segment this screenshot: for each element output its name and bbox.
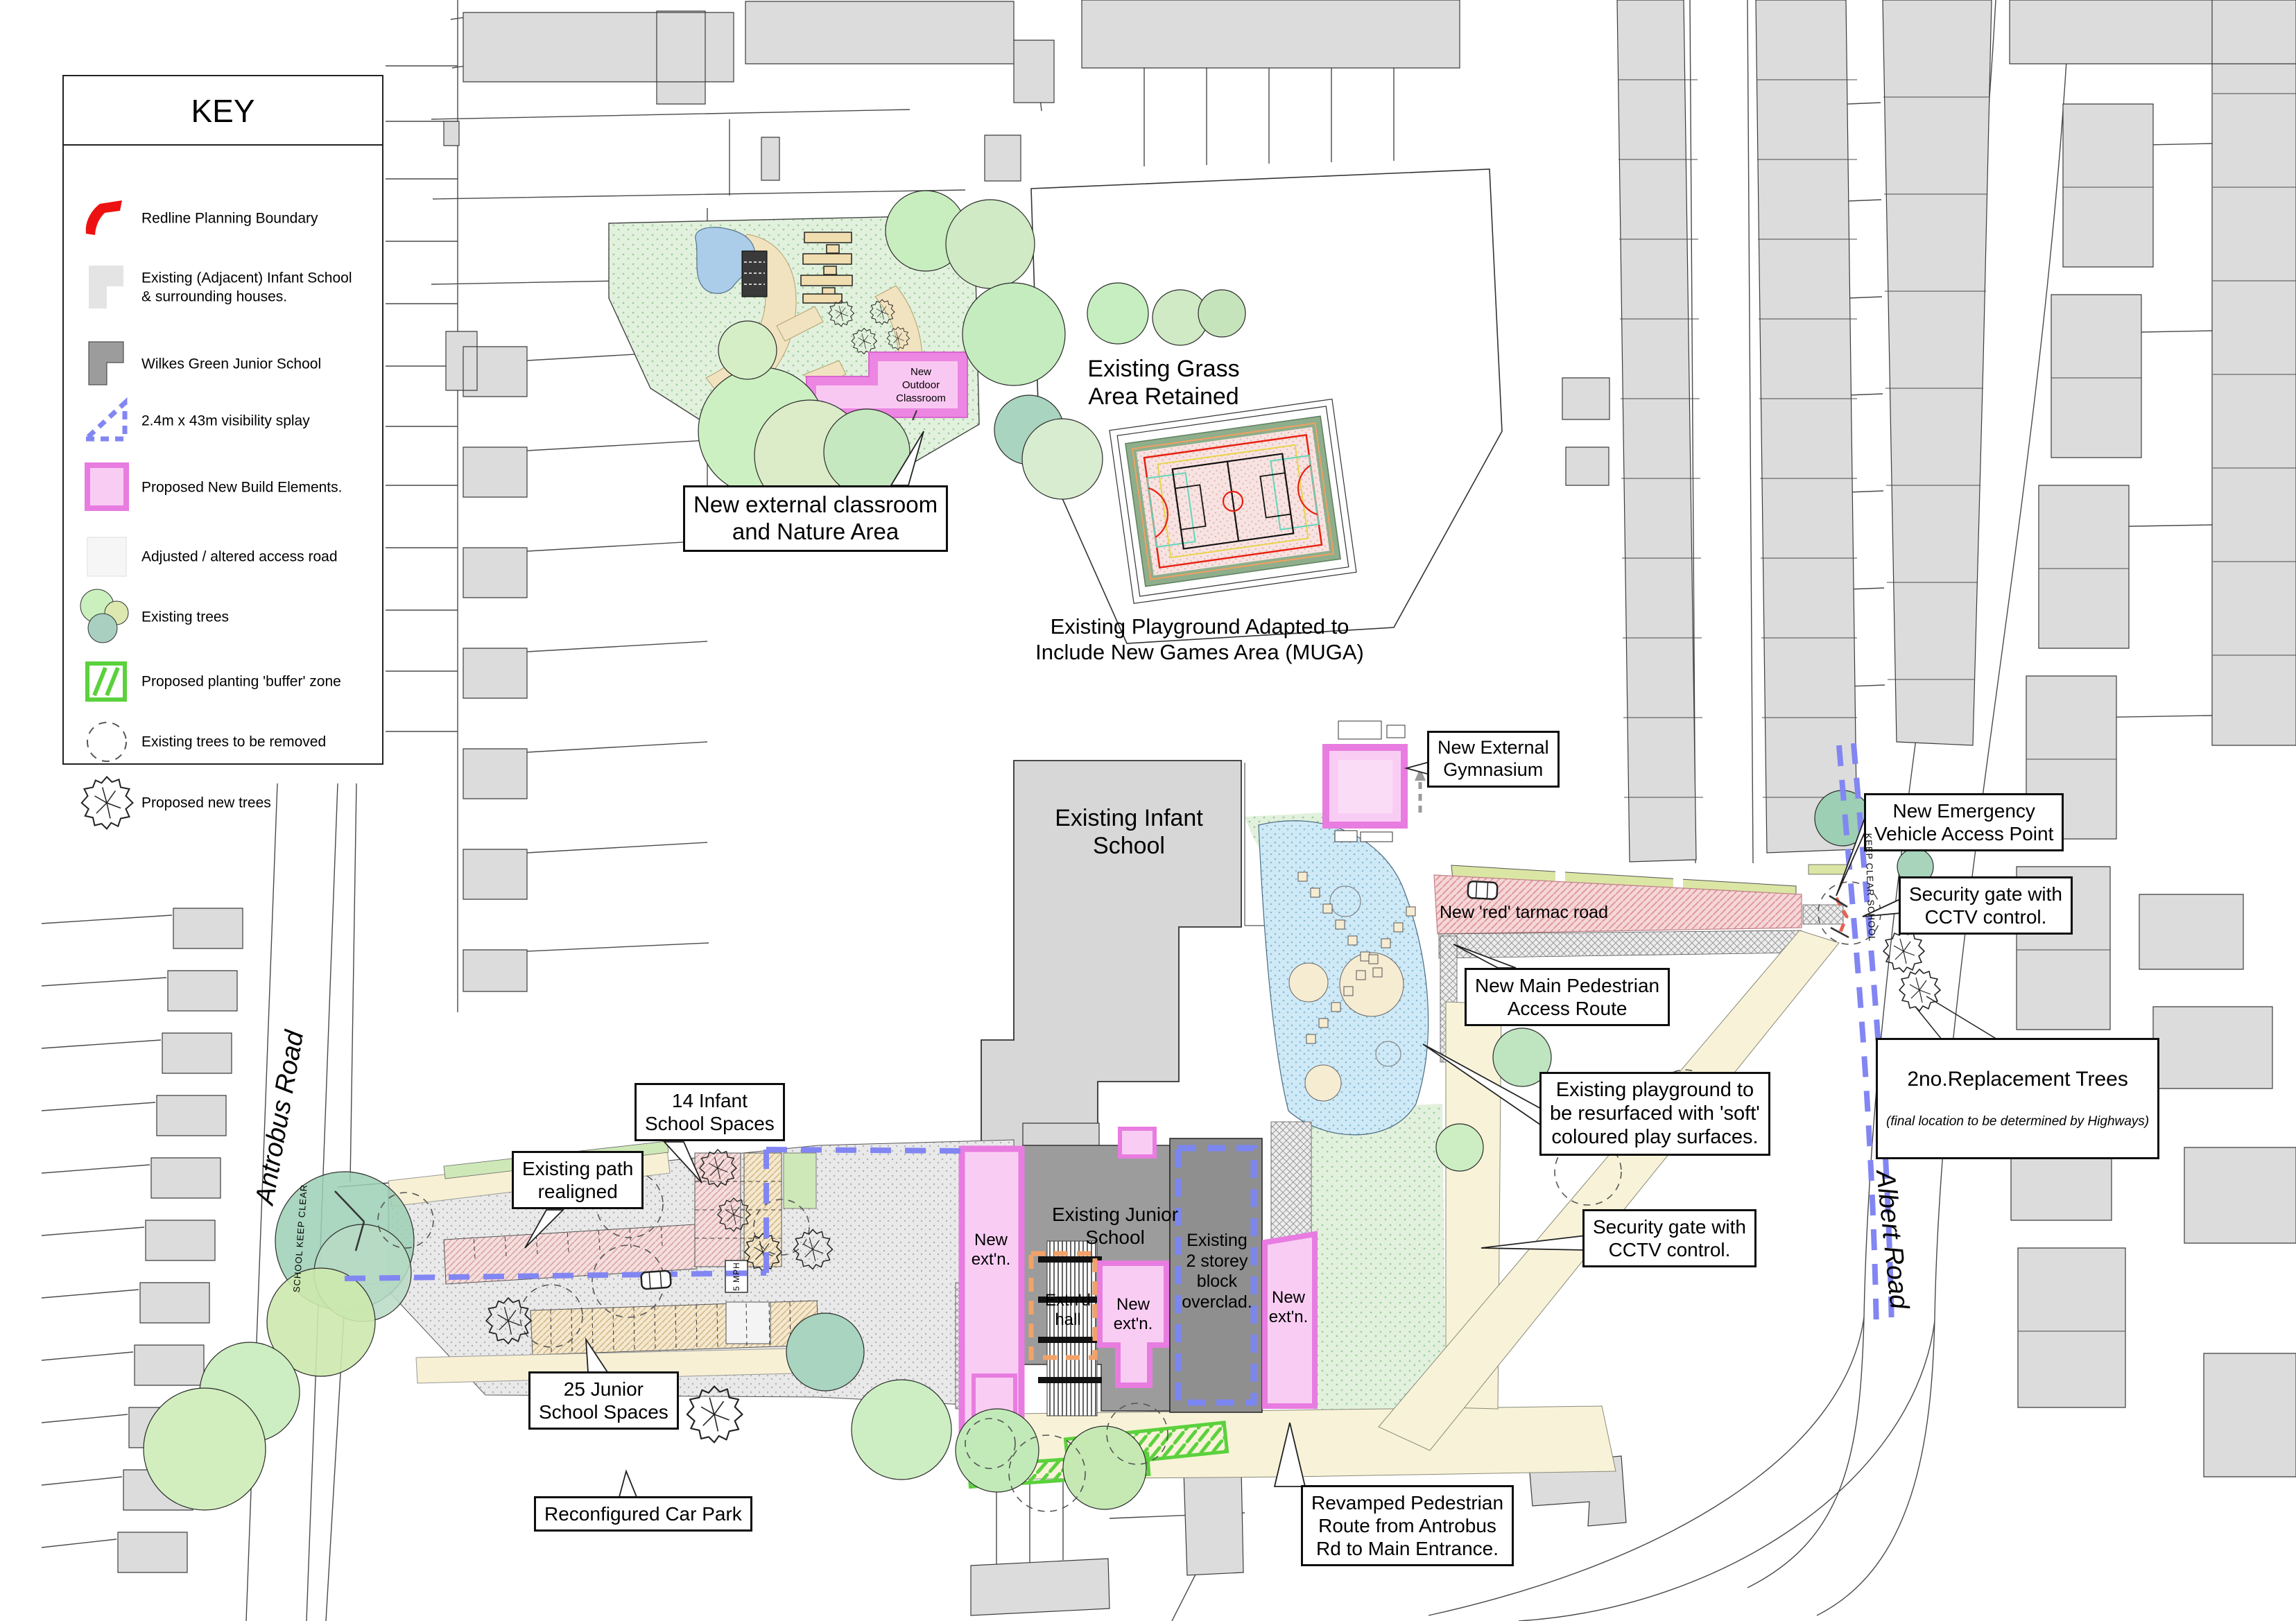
gymnasium-building <box>1326 721 1426 842</box>
access-road-icon <box>76 526 137 587</box>
label-security-gate-top: Security gate with CCTV control. <box>1899 876 2073 935</box>
label-replacement-trees: 2no.Replacement Trees (final location to… <box>1876 1038 2159 1159</box>
label-car-park: Reconfigured Car Park <box>534 1496 752 1532</box>
label-junior-spaces: 25 Junior School Spaces <box>528 1371 679 1430</box>
label-infant-spaces: 14 Infant School Spaces <box>635 1083 785 1141</box>
key-item-splay: 2.4m x 43m visibility splay <box>64 390 382 452</box>
label-soft-surfaces: Existing playground to be resurfaced wit… <box>1539 1072 1770 1156</box>
label-pedestrian-access: New Main Pedestrian Access Route <box>1465 968 1670 1026</box>
existing-trees-icon <box>76 587 137 648</box>
existing-infant-school-icon <box>76 257 137 318</box>
label-infant-school: Existing Infant School <box>1055 804 1203 860</box>
label-muga: Existing Playground Adapted to Include N… <box>1035 614 1364 665</box>
key-item-new-build: Proposed New Build Elements. <box>64 454 382 520</box>
label-emergency-access: New Emergency Vehicle Access Point <box>1864 793 2064 851</box>
label-junior-school: Existing Junior School <box>1052 1203 1178 1249</box>
key-item-trees-removed: Existing trees to be removed <box>64 709 382 774</box>
label-new-extn-right: New ext'n. <box>1269 1288 1309 1328</box>
new-trees-icon <box>76 772 137 833</box>
label-security-gate-bottom: Security gate with CCTV control. <box>1582 1209 1756 1267</box>
key-title: KEY <box>64 76 382 146</box>
replacement-trees-title: 2no.Replacement Trees <box>1886 1067 2149 1091</box>
label-nature-area: New external classroom and Nature Area <box>683 485 948 552</box>
redline-boundary-icon <box>76 188 137 249</box>
key-panel: KEY Redline Planning Boundary Existing (… <box>62 75 383 765</box>
key-item-new-trees: Proposed new trees <box>64 768 382 838</box>
trees-removed-icon <box>76 711 137 772</box>
label-overclad: Existing 2 storey block overclad. <box>1182 1231 1252 1312</box>
label-mph-sign: 5 MPH <box>732 1262 741 1291</box>
key-item-junior-school: Wilkes Green Junior School <box>64 333 382 395</box>
label-new-extn-left: New ext'n. <box>972 1231 1011 1270</box>
buffer-zone-icon <box>76 651 137 712</box>
visibility-splay-icon <box>76 390 137 451</box>
label-grass-area: Existing Grass Area Retained <box>1087 355 1239 410</box>
key-item-infant-school: Existing (Adjacent) Infant School & surr… <box>64 253 382 322</box>
label-pedestrian-route: Revamped Pedestrian Route from Antrobus … <box>1301 1485 1514 1566</box>
key-item-redline: Redline Planning Boundary <box>64 187 382 250</box>
new-build-icon <box>76 457 137 518</box>
label-path-realigned: Existing path realigned <box>512 1151 644 1209</box>
key-item-buffer-zone: Proposed planting 'buffer' zone <box>64 650 382 713</box>
muga-court <box>1110 399 1356 604</box>
site-plan-canvas: KEY Redline Planning Boundary Existing (… <box>0 0 2296 1621</box>
replacement-trees-note: (final location to be determined by High… <box>1886 1114 2149 1129</box>
label-gymnasium: New External Gymnasium <box>1427 731 1560 788</box>
key-item-existing-trees: Existing trees <box>64 579 382 655</box>
label-tarmac-road: New 'red' tarmac road <box>1440 903 1608 924</box>
label-extnd-hall: Extn'd hall <box>1045 1291 1091 1330</box>
junior-school-icon <box>76 333 137 395</box>
label-new-extn-mid: New ext'n. <box>1114 1295 1153 1335</box>
label-outdoor-classroom: New Outdoor Classroom <box>896 366 946 405</box>
